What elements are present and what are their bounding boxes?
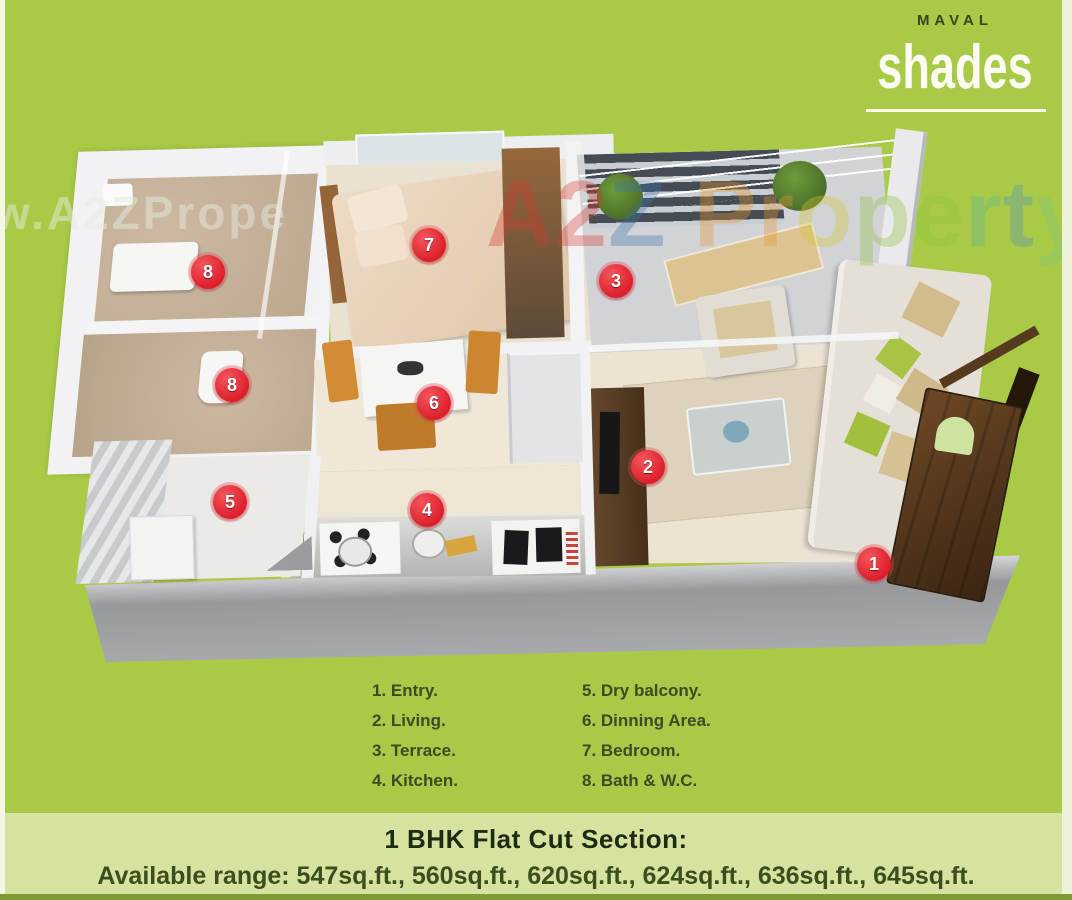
footer-strip: 1 BHK Flat Cut Section: Available range:… [0, 813, 1072, 900]
plan-markers: 123456788 [30, 118, 1035, 666]
brand-logo: MAVAL shades [860, 12, 1050, 85]
plan-marker-3: 3 [599, 264, 633, 298]
legend-item: 7. Bedroom. [582, 736, 711, 766]
right-edge-strip [1062, 0, 1072, 900]
plan-marker-8: 8 [215, 368, 249, 402]
legend-item: 3. Terrace. [372, 736, 544, 766]
legend-item: 1. Entry. [372, 676, 544, 706]
plan-marker-1: 1 [857, 547, 891, 581]
plan-marker-8: 8 [191, 255, 225, 289]
legend-column-1: 1. Entry.2. Living.3. Terrace.4. Kitchen… [372, 676, 544, 796]
legend-item: 6. Dinning Area. [582, 706, 711, 736]
legend-item: 2. Living. [372, 706, 544, 736]
plan-marker-6: 6 [417, 386, 451, 420]
plan-title: 1 BHK Flat Cut Section: [0, 824, 1072, 855]
poster-background: MAVAL shades w.A2ZPrope A2Z Property [0, 0, 1072, 900]
legend-item: 4. Kitchen. [372, 766, 544, 796]
logo-underline [866, 109, 1046, 112]
bottom-edge-strip [0, 894, 1072, 900]
legend: 1. Entry.2. Living.3. Terrace.4. Kitchen… [372, 676, 711, 796]
legend-column-2: 5. Dry balcony.6. Dinning Area.7. Bedroo… [582, 676, 711, 796]
legend-item: 5. Dry balcony. [582, 676, 711, 706]
brand-name-main: shades [864, 30, 1046, 103]
available-range: Available range: 547sq.ft., 560sq.ft., 6… [0, 862, 1072, 891]
legend-item: 8. Bath & W.C. [582, 766, 711, 796]
brand-name-top: MAVAL [860, 12, 1050, 29]
floor-plan: 123456788 [30, 118, 1035, 666]
plan-marker-4: 4 [410, 493, 444, 527]
plan-marker-2: 2 [631, 450, 665, 484]
left-edge-strip [0, 0, 5, 900]
plan-marker-7: 7 [412, 228, 446, 262]
plan-marker-5: 5 [213, 485, 247, 519]
